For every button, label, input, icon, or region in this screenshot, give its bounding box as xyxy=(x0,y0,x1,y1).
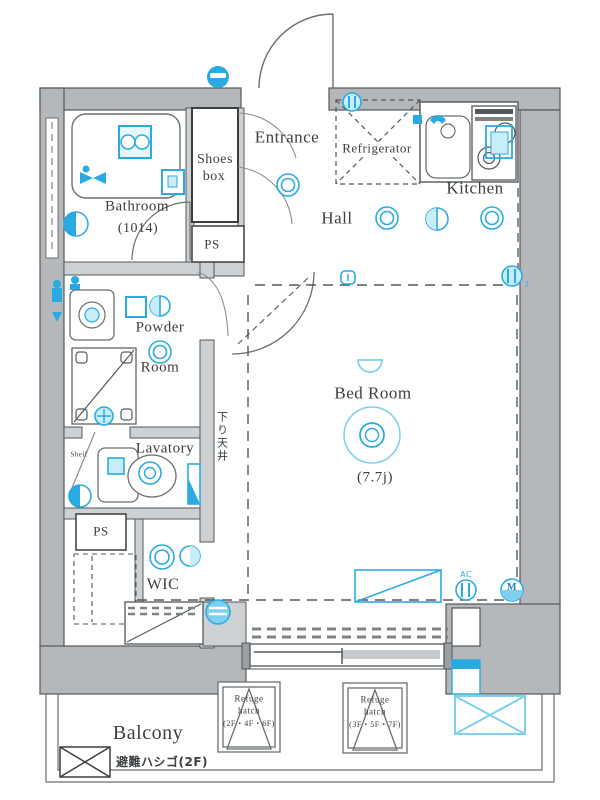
bedroom-size-label: (7.7j) xyxy=(357,471,393,486)
entrance-downlight-icon xyxy=(277,174,299,196)
refuge-hatch-1 xyxy=(218,682,280,752)
refuge-hatch-2-label-1: Refuge xyxy=(361,696,390,705)
bathroom-label: Bathroom xyxy=(105,200,169,215)
refuge-hatch-2-label-3: (3F・5F・7F) xyxy=(349,721,401,729)
main-window xyxy=(242,643,452,669)
hall-label: Hall xyxy=(321,210,352,227)
outlet-count-label: 2 xyxy=(525,281,530,289)
meter-label: M xyxy=(507,583,517,593)
refuge-hatch-1-label-1: Refuge xyxy=(235,695,264,704)
curtain-box-dashes xyxy=(252,629,448,637)
ac-unit-outline xyxy=(355,570,441,602)
powder-halflight-icon xyxy=(150,296,170,316)
drain-icon xyxy=(95,407,113,425)
bath-light-icon xyxy=(64,212,88,236)
ps-niche xyxy=(452,608,480,646)
bathroom-size-label: (1014) xyxy=(118,222,158,236)
powder-room-label-1: Powder xyxy=(136,321,185,336)
mirror-cabinet-icon xyxy=(188,464,200,504)
balcony-equipment-box xyxy=(455,696,525,734)
entrance-label: Entrance xyxy=(255,129,319,146)
bedroom-pendant-icon xyxy=(358,360,382,372)
hall-sensor-light-icon xyxy=(426,208,448,230)
kitchen-label: Kitchen xyxy=(446,180,503,197)
washing-machine xyxy=(70,276,114,340)
ps-lower-label: PS xyxy=(93,525,108,538)
refrigerator-label: Refrigerator xyxy=(340,142,414,155)
ac-label: AC xyxy=(460,571,472,579)
ac-outlet-icon xyxy=(456,580,476,600)
refuge-hatch-2-label-2: hatch xyxy=(364,708,386,717)
wic-downlight-icon xyxy=(150,545,174,569)
bath-faucet-icon xyxy=(80,166,106,185)
outdoor-tap-box xyxy=(452,660,480,694)
balcony-label: Balcony xyxy=(113,723,183,743)
vent-fan-icon xyxy=(206,600,230,624)
door-chime-icon xyxy=(207,66,229,88)
lavatory-light-icon xyxy=(69,485,91,507)
floor-plan-drawing xyxy=(0,0,600,800)
powder-vent-icon xyxy=(126,297,146,317)
refrigerator-outlet-icon xyxy=(343,93,361,111)
wall-switch-icon xyxy=(341,271,355,284)
lowered-ceiling-label: 下り天井 xyxy=(217,411,228,463)
shelf-label: Shelf xyxy=(70,452,87,459)
ps-upper-label: PS xyxy=(204,238,219,251)
shoes-box-label-1: Shoes xyxy=(197,153,233,167)
shoes-box-label-2: box xyxy=(203,170,226,184)
refuge-hatch-1-label-2: hatch xyxy=(238,707,260,716)
bath-vent-fan-icon xyxy=(119,126,151,158)
refuge-hatch-1-label-3: (2F・4F・6F) xyxy=(223,720,275,728)
powder-room-label-2: Room xyxy=(141,361,180,376)
wic-label: WIC xyxy=(147,577,180,593)
refuge-hatch-2 xyxy=(343,683,407,753)
floor-plan: Bathroom (1014) Shoes box PS Entrance Re… xyxy=(0,0,600,800)
powder-door-arc xyxy=(198,272,228,336)
bedroom-label: Bed Room xyxy=(334,385,411,402)
left-wall-window xyxy=(46,118,58,258)
bedroom-ceiling-light-icon xyxy=(344,407,400,463)
escape-ladder-label: 避難ハシゴ(2F) xyxy=(116,756,208,768)
lavatory-door-line xyxy=(72,432,95,488)
double-outlet-icon xyxy=(502,266,522,286)
wic-halflight-icon xyxy=(180,546,200,566)
entrance-door xyxy=(259,14,333,88)
side-window xyxy=(125,602,203,644)
bath-control-panel-icon xyxy=(162,170,184,194)
lavatory-label: Lavatory xyxy=(136,442,194,457)
escape-ladder-icon xyxy=(60,747,110,777)
